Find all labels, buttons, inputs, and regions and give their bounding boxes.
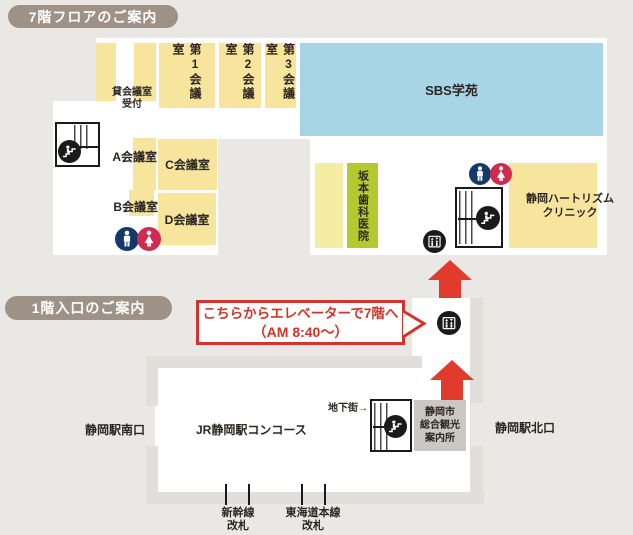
heart-clinic-label: 静岡ハートリズム クリニック bbox=[515, 192, 625, 220]
female-restroom-icon bbox=[137, 227, 161, 251]
room-a-label: A会議室 bbox=[100, 148, 157, 165]
shinkansen-gate-line2: 改札 bbox=[227, 520, 249, 532]
room-c: C会議室 bbox=[158, 139, 217, 190]
callout-line1: こちらからエレベーターで7階へ bbox=[203, 305, 399, 323]
wall-bottom bbox=[146, 492, 484, 504]
gate-tick bbox=[324, 484, 326, 505]
gate-tick bbox=[225, 484, 227, 505]
elevator-icon bbox=[423, 230, 446, 253]
gate-tick bbox=[248, 484, 250, 505]
tourist-info-line2: 総合観光 bbox=[420, 419, 460, 432]
station-floor-guide: 7階フロアのご案内 第1会議室 第2会議室 第3会議室 SBS学苑 貸会議室 受… bbox=[0, 0, 633, 535]
gate-tick bbox=[301, 484, 303, 505]
wall-right-lower bbox=[470, 446, 483, 504]
female-restroom-icon bbox=[490, 163, 512, 185]
concourse-label: JR静岡駅コンコース bbox=[196, 421, 307, 438]
wall-top bbox=[146, 356, 422, 368]
underground-mall-label: 地下街→ bbox=[328, 403, 368, 415]
rental-reception-line1: 貸会議室 bbox=[112, 87, 152, 98]
escalator-icon bbox=[476, 206, 500, 230]
male-restroom-icon bbox=[115, 227, 139, 251]
shinkansen-gate-label: 新幹線 改札 bbox=[207, 507, 269, 533]
room-meeting-1: 第1会議室 bbox=[159, 43, 215, 108]
room-meeting-3: 第3会議室 bbox=[265, 43, 296, 108]
room-sbs-gakuen: SBS学苑 bbox=[300, 43, 603, 136]
shinkansen-gate-line1: 新幹線 bbox=[222, 507, 255, 519]
tokaido-gate-line2: 改札 bbox=[302, 520, 324, 532]
section-title-7f: 7階フロアのご案内 bbox=[8, 5, 178, 28]
room-sakamoto-dental: 坂本歯科医院 bbox=[347, 163, 378, 248]
room-strip-3 bbox=[315, 163, 343, 248]
south-exit-label: 静岡駅南口 bbox=[85, 421, 145, 438]
escalator-icon bbox=[58, 140, 81, 163]
male-restroom-icon bbox=[469, 163, 491, 185]
rental-reception-label: 貸会議室 受付 bbox=[100, 87, 164, 111]
tourist-info-box: 静岡市 総合観光 案内所 bbox=[414, 400, 466, 451]
tokaido-gate-line1: 東海道本線 bbox=[286, 507, 341, 519]
wall-left-upper bbox=[146, 356, 158, 406]
room-meeting-2: 第2会議室 bbox=[219, 43, 261, 108]
wall-right-upper bbox=[470, 298, 483, 403]
callout-line2: （AM 8:40～） bbox=[253, 323, 349, 341]
rental-reception-line2: 受付 bbox=[122, 99, 142, 110]
stairs-line bbox=[79, 146, 98, 148]
elevator-callout: こちらからエレベーターで7階へ （AM 8:40～） bbox=[196, 300, 405, 345]
tourist-info-line3: 案内所 bbox=[425, 432, 455, 445]
up-arrow-shaft bbox=[441, 379, 463, 400]
heart-clinic-line2: クリニック bbox=[543, 207, 598, 219]
floor-7f-cutout bbox=[218, 139, 310, 255]
section-title-1f: 1階入口のご案内 bbox=[5, 296, 172, 320]
north-exit-label: 静岡駅北口 bbox=[495, 419, 555, 436]
escalator-icon bbox=[384, 415, 407, 438]
tourist-info-line1: 静岡市 bbox=[425, 406, 455, 419]
up-arrow-shaft bbox=[439, 279, 461, 298]
room-d: D会議室 bbox=[158, 193, 216, 245]
callout-pointer bbox=[402, 309, 428, 339]
up-arrow bbox=[428, 260, 472, 280]
up-arrow bbox=[430, 360, 474, 380]
room-b-label: B会議室 bbox=[100, 198, 158, 215]
tokaido-gate-label: 東海道本線 改札 bbox=[282, 507, 344, 533]
heart-clinic-line1: 静岡ハートリズム bbox=[526, 193, 614, 205]
elevator-icon bbox=[437, 311, 461, 335]
